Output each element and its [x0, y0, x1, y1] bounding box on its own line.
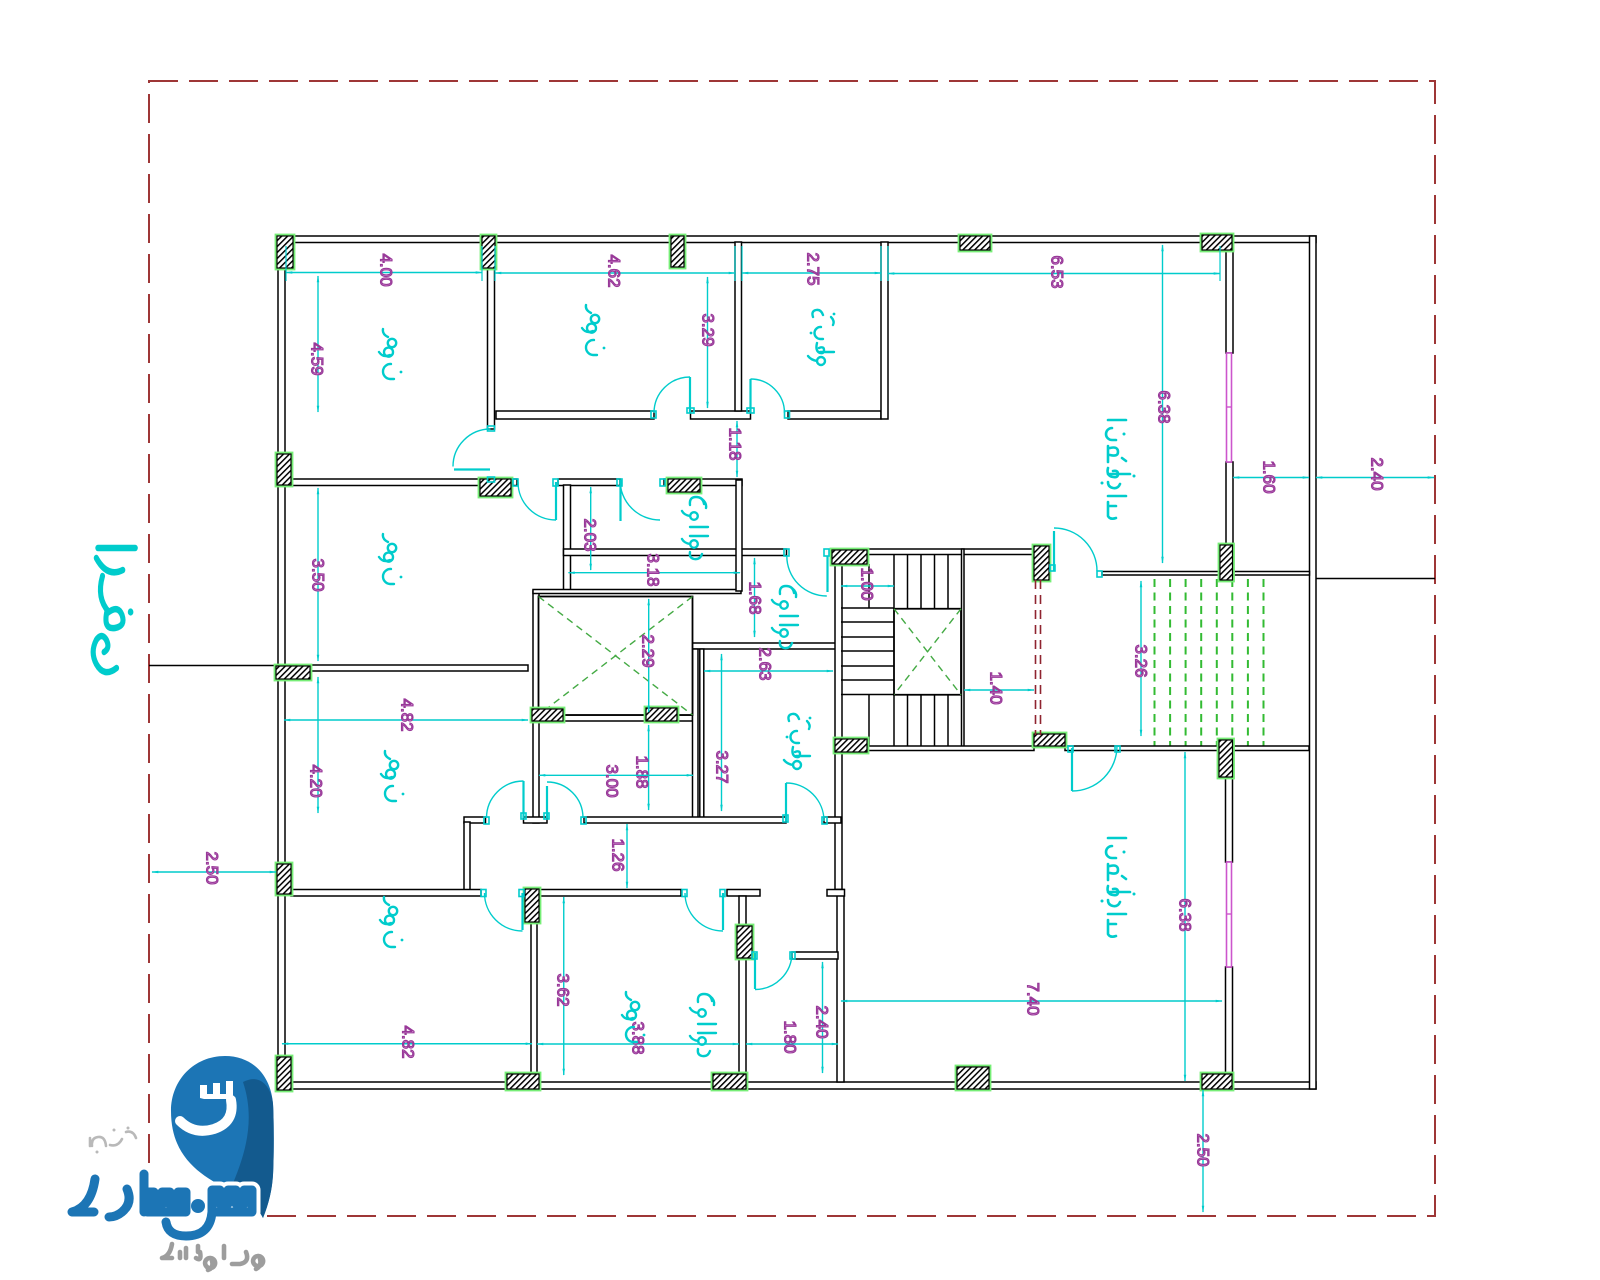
svg-text:3.18: 3.18: [644, 553, 663, 586]
svg-text:4.00: 4.00: [377, 253, 396, 286]
svg-text:1.60: 1.60: [1260, 460, 1279, 493]
svg-text:7.40: 7.40: [1024, 982, 1043, 1015]
svg-text:3.00: 3.00: [603, 764, 622, 797]
svg-text:2.40: 2.40: [1368, 457, 1387, 490]
svg-text:1.80: 1.80: [781, 1020, 800, 1053]
svg-text:4.62: 4.62: [605, 254, 624, 287]
svg-text:1.18: 1.18: [726, 427, 745, 460]
svg-text:2.50: 2.50: [203, 851, 222, 884]
svg-text:2.75: 2.75: [804, 252, 823, 285]
svg-text:1.88: 1.88: [633, 755, 652, 788]
svg-text:2.03: 2.03: [581, 518, 600, 551]
svg-text:1.68: 1.68: [746, 581, 765, 614]
svg-text:1.26: 1.26: [609, 838, 628, 871]
svg-text:6.53: 6.53: [1048, 255, 1067, 288]
svg-text:3.50: 3.50: [309, 558, 328, 591]
svg-text:2.50: 2.50: [1194, 1133, 1213, 1166]
svg-text:2.63: 2.63: [756, 647, 775, 680]
svg-text:4.20: 4.20: [307, 764, 326, 797]
svg-text:1.40: 1.40: [987, 671, 1006, 704]
svg-text:2.40: 2.40: [813, 1005, 832, 1038]
svg-text:2.29: 2.29: [639, 634, 658, 667]
svg-text:3.26: 3.26: [1132, 644, 1151, 677]
svg-text:6.38: 6.38: [1155, 390, 1174, 423]
svg-text:3.29: 3.29: [699, 313, 718, 346]
svg-text:3.27: 3.27: [713, 750, 732, 783]
svg-text:4.82: 4.82: [399, 1025, 418, 1058]
svg-text:4.59: 4.59: [308, 342, 327, 375]
svg-text:6.38: 6.38: [1176, 898, 1195, 931]
svg-text:4.82: 4.82: [398, 698, 417, 731]
svg-text:1.00: 1.00: [858, 567, 877, 600]
svg-text:3.62: 3.62: [554, 973, 573, 1006]
